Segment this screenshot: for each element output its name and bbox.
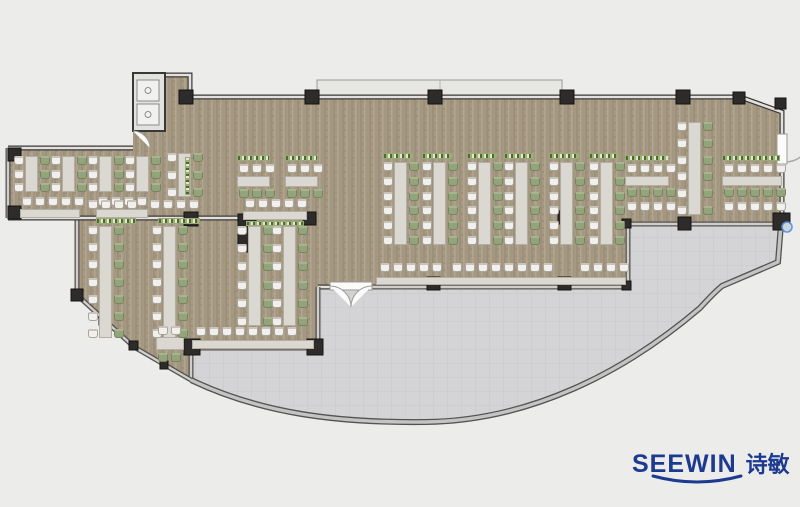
brand-logo: SEEWIN 诗敏 [632,452,790,477]
floor-fills [8,75,782,422]
vestibule [133,73,165,131]
brand-name-cn: 诗敏 [746,454,790,476]
floorplan-svg [0,0,800,507]
floor-plan-stage: SEEWIN 诗敏 [0,0,800,507]
logo-swoosh-icon [647,474,747,486]
annotation-marker-dot [782,222,792,232]
brand-wordmark: SEEWIN [632,452,737,477]
